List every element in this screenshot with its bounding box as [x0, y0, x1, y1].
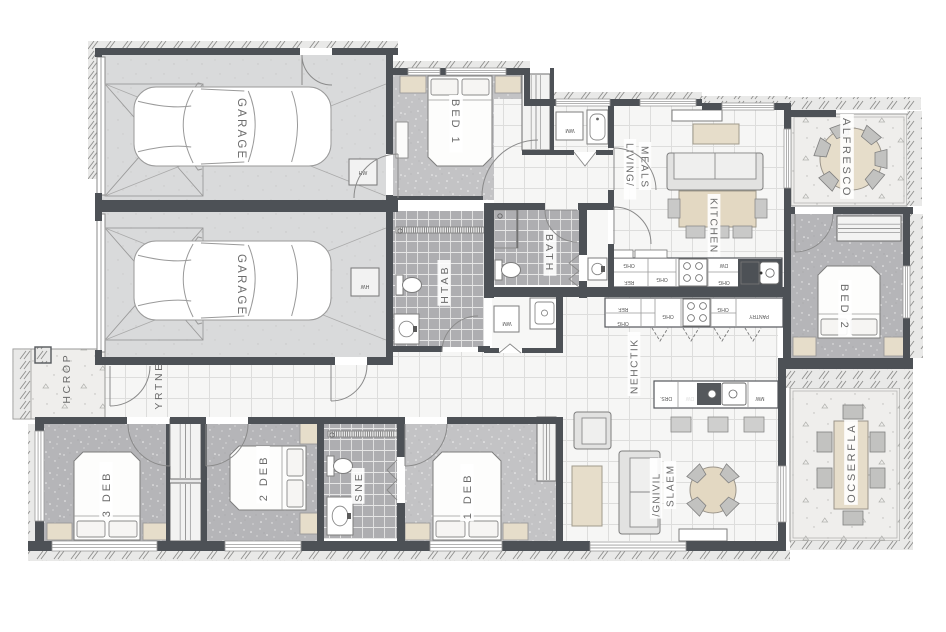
svg-text:OHG: OHG: [623, 262, 635, 268]
svg-text:YRTNE: YRTNE: [153, 361, 165, 409]
svg-text:REF.: REF.: [624, 279, 635, 285]
svg-text:KITCHEN: KITCHEN: [707, 198, 718, 254]
svg-text:MEALS: MEALS: [638, 146, 649, 189]
svg-text:HCROP: HCROP: [61, 353, 73, 404]
svg-text:GARAGE: GARAGE: [235, 254, 247, 316]
svg-text:HTAB: HTAB: [439, 264, 451, 303]
svg-text:GARAGE: GARAGE: [235, 98, 247, 160]
svg-text:MW: MW: [755, 395, 764, 401]
svg-text:DW: DW: [686, 395, 695, 401]
svg-text:NEHCTIK: NEHCTIK: [630, 338, 641, 394]
svg-text:BED 2: BED 2: [838, 284, 850, 331]
svg-text:HW: HW: [361, 283, 370, 289]
svg-text:DW: DW: [720, 262, 729, 268]
svg-text:BATH: BATH: [543, 234, 555, 273]
svg-text:SNE: SNE: [353, 471, 365, 502]
svg-text:DRS.: DRS.: [660, 395, 672, 401]
svg-text:OHG: OHG: [717, 306, 729, 312]
svg-text:/GNIVIL: /GNIVIL: [652, 473, 663, 517]
svg-text:OHG: OHG: [662, 313, 674, 319]
svg-text:WM: WM: [565, 127, 574, 133]
svg-text:WM: WM: [502, 320, 511, 326]
svg-text:BED 1: BED 1: [449, 99, 461, 146]
svg-text:REF.: REF.: [618, 306, 629, 312]
svg-text:3 DEB: 3 DEB: [101, 471, 113, 518]
svg-text:OHG: OHG: [718, 279, 730, 285]
svg-text:SLAEM: SLAEM: [666, 464, 677, 507]
svg-text:OCSERFLA: OCSERFLA: [846, 423, 858, 503]
svg-text:1 DEB: 1 DEB: [462, 473, 474, 520]
svg-text:OHG: OHG: [656, 276, 668, 282]
svg-text:ALFRESCO: ALFRESCO: [840, 118, 852, 198]
svg-text:OHG: OHG: [617, 320, 629, 326]
svg-text:2 DEB: 2 DEB: [258, 455, 270, 502]
svg-text:PANTRY: PANTRY: [748, 313, 768, 319]
